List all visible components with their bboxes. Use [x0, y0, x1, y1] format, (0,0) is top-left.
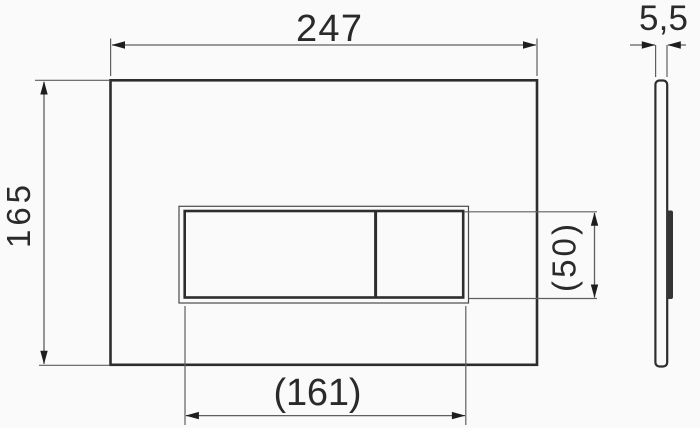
svg-text:(161): (161): [274, 372, 362, 414]
svg-text:247: 247: [296, 8, 362, 50]
svg-text:5,5: 5,5: [639, 0, 688, 38]
svg-text:165: 165: [0, 185, 37, 248]
